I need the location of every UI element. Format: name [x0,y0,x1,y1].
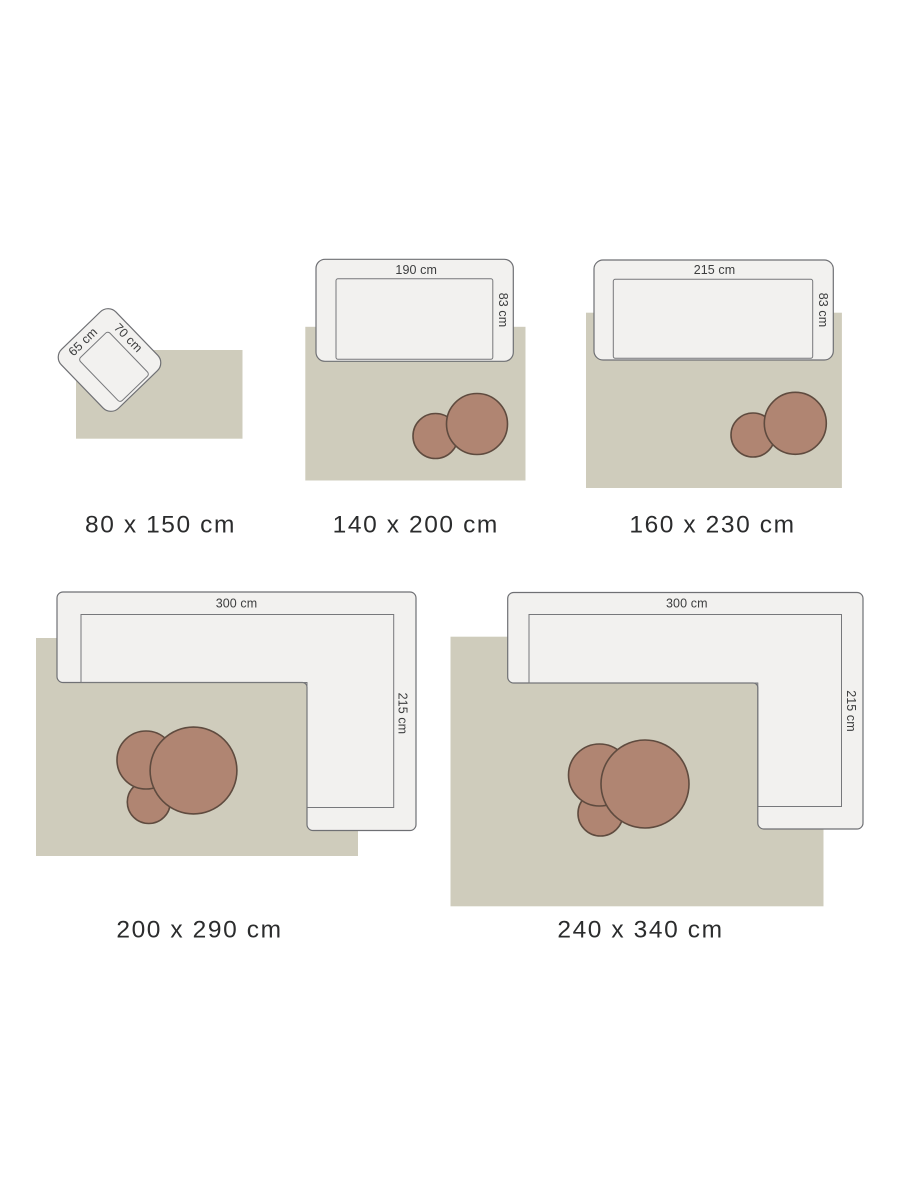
svg-text:300 cm: 300 cm [216,597,258,611]
svg-text:140 x 200 cm: 140 x 200 cm [333,512,499,539]
svg-text:200 x 290 cm: 200 x 290 cm [116,917,282,944]
svg-text:160 x 230 cm: 160 x 230 cm [629,512,795,539]
svg-text:80 x 150 cm: 80 x 150 cm [85,512,236,539]
svg-text:83 cm: 83 cm [816,293,830,328]
svg-text:215 cm: 215 cm [844,690,858,732]
svg-text:215 cm: 215 cm [396,693,410,735]
svg-text:240 x 340 cm: 240 x 340 cm [557,917,723,944]
svg-text:190 cm: 190 cm [395,263,437,277]
svg-text:300 cm: 300 cm [666,597,708,611]
svg-text:215 cm: 215 cm [694,263,736,277]
svg-text:83 cm: 83 cm [496,293,510,328]
